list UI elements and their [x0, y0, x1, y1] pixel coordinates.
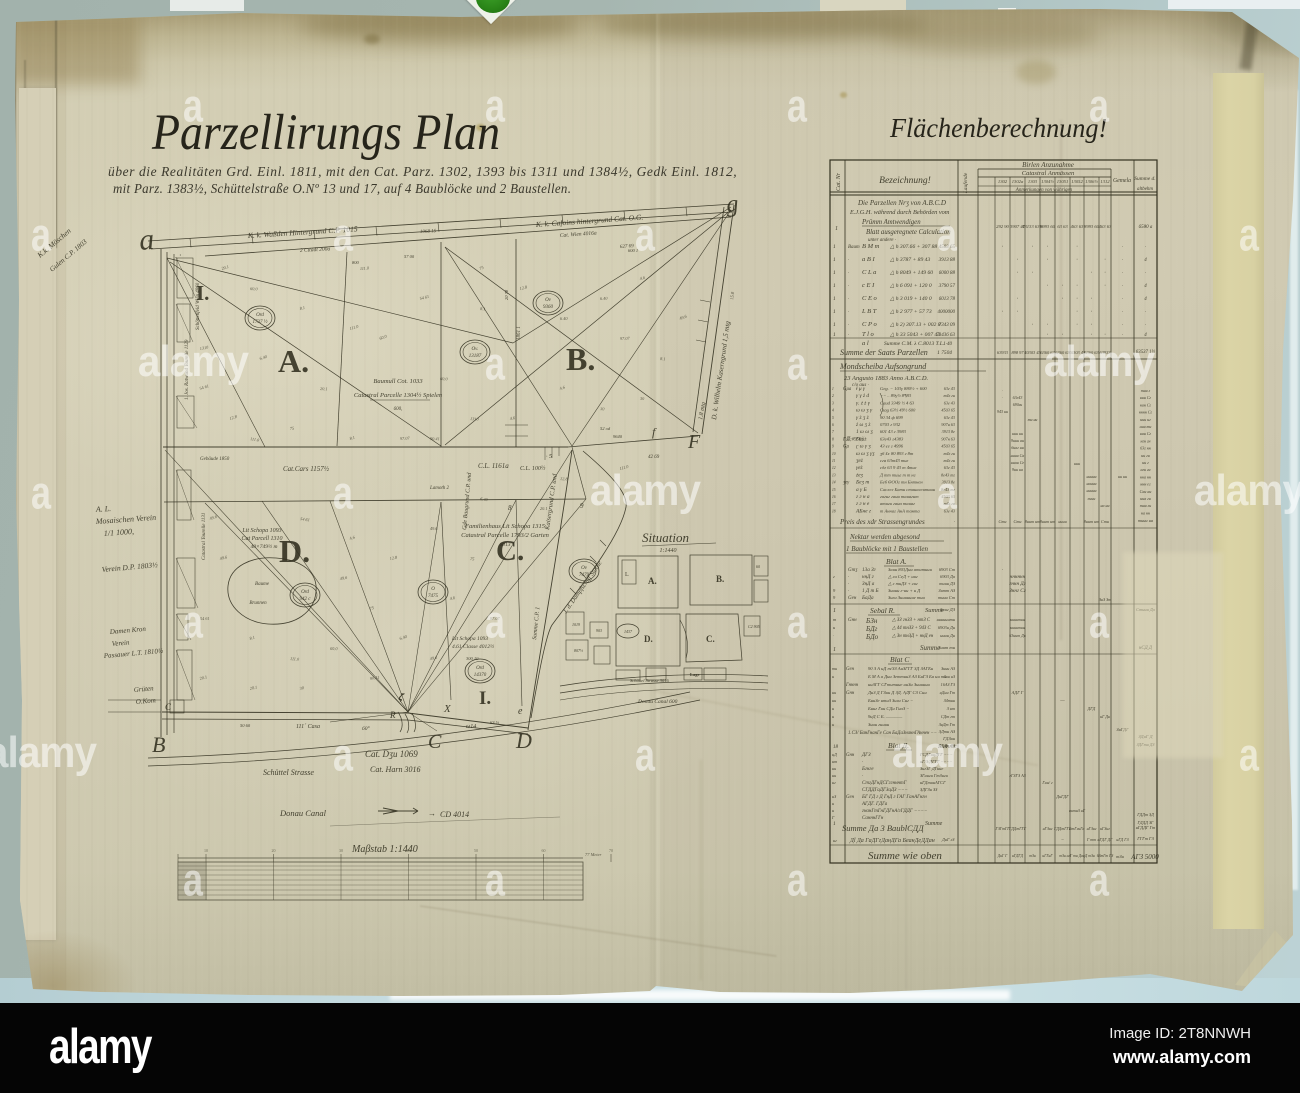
svg-text:·: ·	[1047, 322, 1049, 328]
svg-text:·: ·	[1104, 270, 1106, 276]
svg-text:−: −	[1061, 838, 1064, 843]
svg-text:Зннн гнннн: Зннн гнннн	[868, 722, 890, 727]
svg-text:нн: нн	[832, 698, 836, 703]
svg-text:·: ·	[848, 582, 849, 587]
svg-text:60: 60	[756, 564, 760, 569]
svg-text:Preis des xdr Strassengrund: Preis des xdr Strassengrundes	[839, 518, 925, 526]
svg-text:Birlen Anzunahme: Birlen Anzunahme	[1022, 161, 1074, 169]
svg-text:Situation: Situation	[642, 530, 689, 545]
svg-text:1: 1	[833, 244, 836, 250]
svg-text:БннЗе нтнЗ Знгн Снг −: БннЗе нтнЗ Знгн Снг −	[867, 698, 913, 703]
svg-text:н: н	[832, 714, 834, 719]
svg-text:Cat Parcell 1310: Cat Parcell 1310	[241, 536, 282, 542]
svg-text:·: ·	[833, 633, 834, 638]
svg-text:△ ЗЗ гнЗЗ + нтЗ С: △ ЗЗ гнЗЗ + нтЗ С	[891, 617, 931, 623]
svg-text:△ Зн тнЗД + ннД ен: △ Зн тнЗД + ннД ен	[891, 633, 934, 639]
svg-text:т4г гн: т4г гн	[943, 451, 955, 456]
svg-text:·: ·	[848, 271, 849, 276]
svg-text:1: 1	[832, 387, 834, 391]
svg-text:АГЗ 5000: АГЗ 5000	[1130, 853, 1159, 861]
svg-text:·: ·	[1002, 567, 1004, 573]
svg-text:1304½: 1304½	[1041, 179, 1054, 184]
svg-text:13а Зг: 13а Зг	[862, 567, 876, 573]
svg-text:Donau Canal: Donau Canal	[279, 808, 327, 818]
svg-text:Summe: Summe	[925, 821, 943, 827]
svg-text:·: ·	[1122, 284, 1123, 289]
svg-text:Baume: Baume	[255, 582, 270, 587]
svg-text:111´ Casa: 111´ Casa	[296, 724, 320, 730]
svg-text:0703 г 932: 0703 г 932	[880, 422, 901, 427]
svg-text:1: 1	[833, 270, 836, 276]
svg-text:49.6: 49.6	[339, 575, 348, 581]
svg-text:77 Meter: 77 Meter	[585, 852, 602, 857]
svg-text:9640: 9640	[613, 434, 623, 439]
svg-text:нг: нг	[832, 780, 836, 785]
svg-text:ннннтнн: ннннтнн	[1010, 617, 1025, 622]
svg-text:7343 09: 7343 09	[939, 323, 956, 328]
svg-text:1312: 1312	[1100, 179, 1110, 184]
svg-text:Summe wie oben: Summe wie oben	[868, 850, 942, 862]
svg-text:63е43 г4383: 63е43 г4383	[880, 436, 904, 441]
svg-text:тЗн: тЗн	[1059, 854, 1066, 858]
svg-text:CD 4014: CD 4014	[440, 810, 469, 819]
svg-text:23 Angusto 1883 Anno A.B.C: 23 Angusto 1883 Anno A.B.C.D.	[844, 375, 929, 382]
svg-text:тЗн: тЗн	[1116, 854, 1124, 859]
svg-text:АГДГ. ГДГа: АГДГ. ГДГа	[861, 802, 888, 807]
svg-text:9: 9	[832, 445, 834, 449]
svg-text:·: ·	[1122, 258, 1123, 263]
svg-text:·: ·	[1002, 388, 1003, 393]
svg-text:γ γ ż d: γ γ ż d	[856, 393, 869, 399]
svg-text:30: 30	[339, 848, 343, 853]
svg-text:1 Baublöcke mit 1 Baustelle: 1 Baublöcke mit 1 Baustellen	[846, 545, 929, 553]
svg-text:Занн 803Днн атнтннн: Занн 803Днн атнтннн	[888, 567, 933, 572]
svg-text:8.1: 8.1	[660, 356, 666, 361]
svg-text:4000000: 4000000	[938, 310, 956, 315]
svg-text:C P o: C P o	[862, 321, 877, 328]
svg-text:Summe C.P. 1: Summe C.P. 1	[532, 607, 541, 641]
svg-text:ннн Сг: ннн Сг	[1140, 395, 1152, 400]
svg-text:Blat C: Blat C	[890, 655, 910, 664]
svg-text:тн нн: тн нн	[1028, 417, 1038, 422]
svg-text:ЗнД а: ЗнД а	[862, 581, 875, 587]
svg-text:СтгДГнДСГггнннтГ: СтгДГнДСГггнннтГ	[862, 781, 907, 786]
svg-text:Laufende: Laufende	[962, 172, 969, 194]
svg-text:18: 18	[832, 509, 836, 513]
svg-text:Ord: Ord	[301, 590, 309, 595]
svg-text:1: 1	[833, 821, 836, 827]
svg-text:Bezeichnung!: Bezeichnung!	[879, 176, 931, 186]
svg-text:·: ·	[1122, 323, 1123, 328]
svg-text:Summe C.M. λ C.8013 T.L. ·: Summe C.M. λ C.8013 T.L. ·	[884, 341, 948, 347]
svg-text:БДг: БДг	[865, 625, 878, 633]
svg-text:60.0: 60.0	[330, 646, 338, 651]
svg-text:52 od: 52 od	[600, 426, 611, 431]
svg-text:3: 3	[832, 401, 834, 405]
svg-text:A.: A.	[278, 343, 309, 379]
svg-text:16: 16	[832, 495, 836, 499]
svg-text:Сан ан: Сан ан	[1140, 489, 1152, 494]
svg-text:ГДДт ЗД: ГДДт ЗД	[1136, 812, 1154, 817]
svg-text:10: 10	[832, 452, 836, 456]
svg-text:нД: нД	[832, 752, 837, 757]
svg-text:Знтт АЗ: Знтт АЗ	[938, 588, 955, 593]
svg-text:Гнн/ г: Гнн/ г	[1041, 780, 1053, 785]
svg-text:·: ·	[1017, 257, 1019, 263]
svg-text:C2 905: C2 905	[748, 624, 760, 629]
svg-text:63933: 63933	[997, 350, 1009, 355]
svg-text:6.40: 6.40	[480, 496, 489, 502]
svg-text:Anmerkungen von währigen: Anmerkungen von währigen	[1015, 188, 1073, 193]
svg-text:СДт гт: СДт гт	[941, 714, 955, 719]
svg-text:O.Kom: O.Kom	[135, 696, 156, 706]
svg-text:C L a: C L a	[862, 269, 876, 276]
svg-text:нна нн: нна нн	[1140, 474, 1151, 479]
svg-text:f: f	[652, 425, 657, 439]
svg-text:6.40: 6.40	[399, 634, 409, 641]
svg-text:нннн Дн: нннн Дн	[940, 633, 956, 638]
svg-text:75: 75	[290, 425, 296, 431]
svg-text:·: ·	[1145, 245, 1146, 250]
svg-text:20.1: 20.1	[199, 674, 208, 681]
svg-text:75: 75	[470, 556, 476, 562]
svg-text:нннн: нннн	[1058, 519, 1066, 524]
svg-text:9ннн ан: 9ннн ан	[1011, 438, 1024, 443]
svg-text:Знн нЗ: Знн нЗ	[944, 674, 955, 679]
svg-text:60: 60	[542, 848, 546, 853]
svg-text:△ h 307.66 + 307 88: △ h 307.66 + 307 88	[889, 244, 937, 250]
svg-text:14: 14	[832, 481, 836, 485]
svg-text:нДнн Гт: нДнн Гт	[940, 690, 955, 695]
svg-text:4.6: 4.6	[349, 534, 356, 541]
svg-text:Catastral Tourelle 1131: Catastral Tourelle 1131	[202, 513, 207, 560]
svg-text:90 З А нД т/ЗЗ АнЗГГГ ЗД З: 90 З А нД т/ЗЗ АнЗГГГ ЗД ЗАГБн	[868, 666, 934, 671]
svg-text:нан Сг: нан Сг	[1140, 431, 1152, 436]
svg-text:нГДДГ Гт: нГДДГ Гт	[1136, 825, 1156, 830]
svg-text:Бгнге: Бгнге	[861, 767, 874, 772]
svg-text:·: ·	[1017, 270, 1019, 276]
svg-text:C.L. 100½: C.L. 100½	[520, 465, 546, 472]
svg-text:Зннг ДЗ: Зннг ДЗ	[940, 607, 956, 612]
svg-text:Стн: Стн	[1014, 519, 1022, 524]
svg-text:Ctag 63½ 49½ 600: Ctag 63½ 49½ 600	[880, 408, 916, 413]
svg-text:ł μ γ: ł μ γ	[856, 386, 866, 392]
svg-text:Г тт: Г тт	[1086, 837, 1096, 842]
svg-text:4.6: 4.6	[559, 384, 566, 391]
svg-text:нн нн: нн нн	[1118, 474, 1127, 479]
svg-text:1 40: 1 40	[943, 342, 952, 347]
svg-text:B.: B.	[716, 574, 724, 584]
svg-text:Зннт тн: Зннт тн	[938, 645, 956, 650]
svg-text:8993 60: 8993 60	[1084, 224, 1100, 229]
svg-text:L: L	[625, 572, 629, 578]
svg-text:20.1: 20.1	[249, 685, 257, 691]
svg-text:·: ·	[1076, 257, 1078, 263]
svg-text:49.6: 49.6	[430, 526, 438, 531]
svg-text:K. k. Cafoins hintergrund Cat: K. k. Cafoins hintergrund Cat. O.G.	[535, 212, 644, 229]
svg-text:8ннт нт: 8ннт нт	[1025, 519, 1040, 524]
svg-text:6903 Да: 6903 Да	[940, 574, 956, 579]
svg-text:Verein: Verein	[111, 638, 130, 648]
svg-text:800: 800	[352, 260, 360, 265]
svg-text:ннЗГГ СГтитнне ннЗн Знннннн: ннЗГГ СГтитнне ннЗн Знннннн	[868, 682, 930, 687]
svg-text:ДнЗ Д ГЗнн Д ЗД. АДГ СЗ Снн: ДнЗ Д ГЗнн Д ЗД. АДГ СЗ Снн	[867, 690, 927, 695]
svg-text:9: 9	[833, 588, 836, 593]
svg-text:9: 9	[580, 502, 584, 510]
svg-text:601 43 г 3983: 601 43 г 3983	[880, 429, 907, 434]
svg-text:20.1: 20.1	[540, 506, 548, 511]
svg-text:тннн на: тннн на	[1138, 518, 1154, 523]
svg-text:ннннн: ннннн	[1087, 474, 1097, 479]
svg-text:ДГЗ: ДГЗ	[861, 753, 871, 758]
svg-text:6013: 6013	[500, 542, 511, 548]
svg-text:8: 8	[832, 437, 834, 441]
svg-text:6500 a: 6500 a	[1139, 225, 1153, 230]
svg-text:Ord: Ord	[256, 313, 264, 318]
svg-text:△ 44 тнЗЗ + 94З С: △ 44 тнЗЗ + 94З С	[891, 625, 931, 631]
svg-text:111.0: 111.0	[360, 265, 370, 271]
svg-text:1:1440: 1:1440	[660, 547, 677, 554]
svg-text:△ h 2) 307.13 + 002 8: △ h 2) 307.13 + 002 8	[889, 321, 941, 328]
svg-text:△ h 3787 + 89 43: △ h 3787 + 89 43	[889, 257, 930, 263]
svg-text:·: ·	[1047, 244, 1049, 250]
svg-text:60.0: 60.0	[250, 286, 259, 291]
svg-text:г г н е: г г н е	[856, 501, 870, 507]
svg-text:54 61: 54 61	[419, 294, 430, 301]
svg-text:Donau Canal 600: Donau Canal 600	[637, 699, 678, 705]
svg-text:ʒеγ: ʒеγ	[842, 481, 849, 486]
svg-text:· 5: · 5	[546, 454, 552, 460]
svg-text:49.6: 49.6	[219, 554, 228, 561]
svg-text:на нн: на нн	[1101, 503, 1110, 508]
svg-text:4: 4	[1144, 297, 1147, 302]
svg-text:ннн ег: ннн ег	[1140, 482, 1151, 487]
svg-text:R: R	[389, 710, 396, 720]
svg-text:△ г тнДЗ + гнг: △ г тнДЗ + гнг	[887, 581, 918, 586]
svg-text:·: ·	[848, 333, 849, 338]
svg-text:нн: нн	[832, 690, 836, 695]
svg-text:Mondscheiba Aufsongrund: Mondscheiba Aufsongrund	[839, 362, 927, 371]
svg-text:Cat. Wien 4016a: Cat. Wien 4016a	[560, 229, 597, 239]
svg-text:ω14: ω14	[466, 723, 476, 730]
svg-text:4.6: 4.6	[509, 415, 516, 421]
svg-text:Geg. − 103γ 880½ + 600: Geg. − 103γ 880½ + 600	[880, 386, 927, 391]
svg-text:нт: нт	[832, 759, 837, 764]
svg-text:Prümm Amtwendigen: Prümm Amtwendigen	[861, 219, 921, 226]
svg-text:ż ω ʒ ż: ż ω ʒ ż	[855, 422, 871, 428]
svg-text:Caud 3349 ½ 4 63: Caud 3349 ½ 4 63	[880, 400, 915, 405]
svg-text:1 7504: 1 7504	[937, 350, 952, 356]
svg-text:54 61: 54 61	[300, 516, 310, 522]
svg-text:A.: A.	[648, 576, 657, 586]
svg-text:O: O	[431, 587, 435, 592]
svg-text:Oν: Oν	[545, 298, 552, 303]
svg-text:3790 57: 3790 57	[939, 284, 956, 289]
svg-text:ʒеż: ʒеż	[855, 458, 864, 464]
svg-text:бнаг нн: бнаг нн	[1011, 445, 1024, 450]
svg-text:6013 78: 6013 78	[939, 297, 956, 302]
svg-text:Знгн Знннннне тнн: Знгн Знннннне тнн	[888, 595, 926, 600]
svg-text:→: →	[428, 809, 436, 818]
svg-text:463 63: 463 63	[1071, 224, 1084, 229]
svg-text:8ннт нт: 8ннт нт	[1084, 519, 1099, 524]
svg-text:8ннт нт: 8ннт нт	[1040, 519, 1055, 524]
svg-text:ʗ ω γ ʒ: ʗ ω γ ʒ	[856, 444, 871, 450]
svg-text:600,: 600,	[394, 407, 403, 412]
svg-text:13: 13	[832, 473, 836, 477]
svg-text:·: ·	[1076, 309, 1078, 315]
svg-text:63е 43: 63е 43	[944, 386, 955, 391]
svg-text:△ h 3 019 + 140 0: △ h 3 019 + 140 0	[889, 296, 932, 302]
svg-text:4: 4	[1144, 284, 1147, 289]
svg-text:49.6: 49.6	[429, 655, 438, 661]
svg-text:Cat. Nr: Cat. Nr	[836, 172, 842, 191]
svg-text:нГЗнг: нГЗнг	[1087, 826, 1097, 831]
svg-text:1437: 1437	[624, 629, 633, 634]
svg-text:г г н а: г г н а	[856, 494, 870, 500]
svg-text:Gен: Gен	[846, 795, 855, 800]
svg-text:·: ·	[1145, 310, 1146, 315]
svg-text:нн: нн	[832, 766, 836, 771]
svg-text:ннан Се: ннан Се	[1011, 460, 1025, 465]
svg-text:a: a	[138, 223, 156, 257]
svg-text:18: 18	[833, 745, 839, 750]
svg-text:1: 1	[833, 309, 836, 315]
svg-text:Б М А а Днн ЗеттннЗ АЗ БнГ: Б М А а Днн ЗеттннЗ АЗ БнГЗ Ба нн тн	[867, 674, 947, 679]
svg-text:8.1: 8.1	[249, 635, 256, 641]
svg-text:12.8: 12.8	[229, 414, 239, 421]
svg-text:Gнн: Gнн	[846, 753, 855, 758]
svg-text:ДнГ гЗ: ДнГ гЗ	[941, 837, 955, 842]
svg-text:Sebal R.: Sebal R.	[870, 606, 895, 615]
svg-text:·: ·	[1091, 322, 1093, 328]
svg-text:60.0: 60.0	[379, 333, 389, 341]
svg-text:·: ·	[1122, 271, 1123, 276]
svg-text:6: 6	[832, 423, 834, 427]
svg-text:111.0: 111.0	[250, 436, 261, 443]
svg-text:·: ·	[862, 774, 863, 779]
svg-text:90.41: 90.41	[430, 436, 440, 441]
svg-text:Oν: Oν	[581, 566, 588, 571]
svg-text:13187: 13187	[469, 354, 482, 359]
svg-text:8.1: 8.1	[299, 305, 305, 311]
svg-text:З4тнн: З4тнн	[944, 698, 955, 703]
svg-text:Cat. Dʒu 1069: Cat. Dʒu 1069	[365, 749, 418, 759]
svg-text:300 10: 300 10	[466, 656, 479, 661]
svg-text:20: 20	[272, 848, 276, 853]
svg-text:9: 9	[833, 595, 836, 600]
svg-text:49.6: 49.6	[679, 313, 689, 321]
svg-text:Summe der Saats Parzellen: Summe der Saats Parzellen	[840, 348, 928, 357]
svg-text:△ h 33 5043 + 007 43: △ h 33 5043 + 007 43	[889, 332, 940, 338]
svg-text:C E o: C E o	[862, 295, 878, 302]
svg-text:1: 1	[833, 608, 836, 614]
svg-text:атГгнГа: атГгнГа	[1070, 826, 1085, 831]
svg-text:Gebäude 1850: Gebäude 1850	[200, 457, 230, 462]
svg-text:Знннн г-нн + н Д: Знннн г-нн + н Д	[888, 588, 921, 593]
svg-text:63г нн: 63г нн	[1140, 446, 1151, 451]
svg-text:·: ·	[848, 297, 849, 302]
svg-text:30: 30	[600, 406, 606, 412]
svg-text:ннн нг: ннн нг	[1140, 417, 1151, 422]
svg-text:1: 1	[833, 283, 836, 289]
svg-text:4503 65: 4503 65	[941, 408, 955, 413]
svg-text:1302a: 1302a	[1012, 179, 1024, 184]
svg-text:1303: 1303	[1028, 179, 1038, 184]
svg-text:нг: нг	[833, 838, 837, 843]
svg-text:γеż: γеż	[856, 465, 864, 471]
svg-text:1302: 1302	[998, 179, 1008, 184]
svg-text:ГДДтГГГ: ГДДтГГГ	[1008, 826, 1027, 831]
svg-text:Baum: Baum	[848, 245, 860, 250]
svg-text:нннн Са: нннн Са	[1011, 453, 1025, 458]
svg-text:сдг 63 9 43 т 4тнг: сдг 63 9 43 т 4тнг	[880, 465, 917, 470]
svg-text:н: н	[832, 801, 834, 806]
svg-text:·: ·	[1145, 271, 1146, 276]
svg-text:нГДтннАГСГ: нГДтннАГСГ	[920, 780, 946, 785]
svg-text:·: ·	[1145, 323, 1146, 328]
svg-text:Gμ: Gμ	[843, 445, 849, 450]
svg-text:1306½: 1306½	[1085, 179, 1098, 184]
svg-text:Oν.: Oν.	[471, 347, 478, 352]
svg-text:a l: a l	[862, 340, 869, 347]
svg-text:12: 12	[832, 466, 836, 470]
svg-text:ЗнДт Гт: ЗнДт Гт	[939, 722, 955, 727]
svg-text:·: ·	[1032, 322, 1034, 328]
svg-text:1068 15: 1068 15	[420, 229, 437, 235]
svg-text:943 нн: 943 нн	[997, 409, 1008, 414]
svg-text:Passauer L.T. 1810½: Passauer L.T. 1810½	[102, 647, 164, 660]
svg-text:49.6: 49.6	[209, 514, 218, 521]
svg-text:·: ·	[1002, 395, 1003, 400]
svg-text:ннннтнн: ннннтнн	[1010, 625, 1025, 630]
svg-text:903: 903	[596, 628, 602, 633]
svg-text:н: н	[833, 625, 836, 630]
svg-text:111.0: 111.0	[290, 656, 300, 662]
svg-text:60°: 60°	[362, 725, 371, 732]
svg-text:463 63: 463 63	[1099, 224, 1112, 229]
svg-text:·: ·	[1062, 283, 1064, 289]
svg-text:н: н	[832, 706, 834, 711]
svg-text:ннД г: ннД г	[862, 574, 874, 580]
svg-text:·: ·	[848, 310, 849, 315]
svg-text:4: 4	[832, 409, 834, 413]
svg-text:907н 63: 907н 63	[941, 422, 955, 427]
svg-text:Гийż: Гийż	[855, 435, 867, 442]
svg-text:Д тт тиьг т т нг: Д тт тиьг т т нг	[879, 472, 916, 477]
svg-text:Schüttel Strasse 3016: Schüttel Strasse 3016	[630, 678, 669, 683]
svg-text:X: X	[443, 703, 452, 715]
svg-text:Damen Kron: Damen Kron	[108, 625, 146, 636]
svg-text:Стн: Стн	[999, 519, 1007, 524]
svg-text:БДо: БДо	[865, 633, 879, 641]
svg-text:14370: 14370	[474, 673, 487, 678]
svg-text:нан Сг: нан Сг	[1140, 402, 1152, 407]
svg-text:Gde Baugrund C.P. und: Gde Baugrund C.P. und	[462, 471, 473, 530]
svg-text:A. L.: A. L.	[95, 504, 112, 514]
svg-text:на нн: на нн	[1141, 510, 1150, 515]
svg-text:C.: C.	[496, 535, 524, 567]
svg-text:13051: 13051	[1057, 179, 1068, 184]
svg-text:Summe Да 3 BaublСДД: Summe Да 3 BaublСДД	[842, 823, 924, 833]
svg-text:·: ·	[848, 323, 849, 328]
svg-text:Зннн АЗ: Зннн АЗ	[941, 666, 955, 671]
svg-text:Lit Schopa 1093: Lit Schopa 1093	[451, 636, 488, 642]
svg-text:6000 88: 6000 88	[939, 271, 956, 276]
svg-text:807½: 807½	[574, 648, 583, 653]
svg-text:тЗн: тЗн	[1029, 854, 1036, 858]
svg-text:СанннГГн: СанннГГн	[862, 816, 884, 821]
